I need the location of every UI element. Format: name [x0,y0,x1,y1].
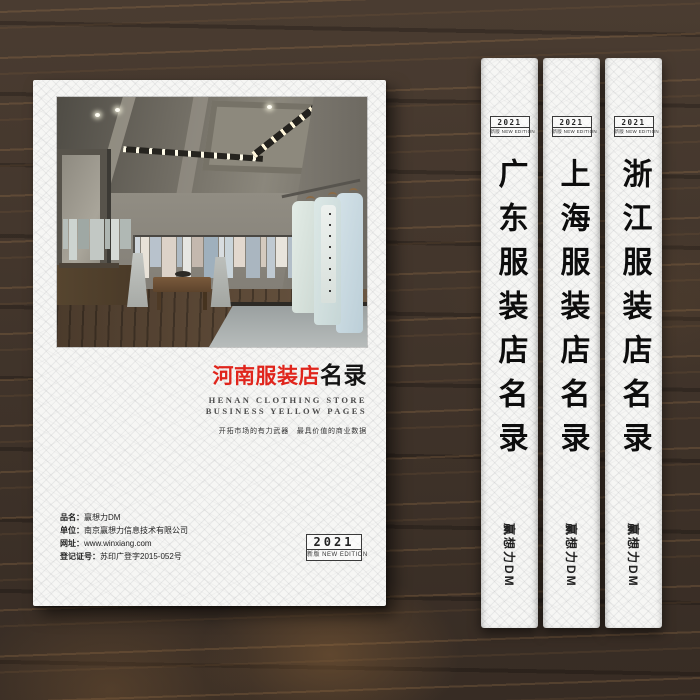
spine-brand: 赢想力DM [563,523,580,588]
photo-wood-floor-left [57,265,135,305]
info-line-company: 单位：南京赢想力信息技术有限公司 [60,524,188,537]
info-value: 苏印广登字2015-052号 [100,552,182,561]
photo-garment [63,219,68,249]
edition-badge: 2021 新版 NEW EDITION [306,534,362,561]
cover-title: 河南服装店名录 [206,364,367,388]
photo-suit-vest [321,205,336,303]
info-label: 网址： [60,539,84,548]
cover-subtitle-line2: BUSINESS YELLOW PAGES [206,406,367,417]
main-book-cover: 河南服装店名录 HENAN CLOTHING STORE BUSINESS YE… [33,80,386,606]
photo-left-garment-rack [63,219,119,265]
photo-garment [267,237,275,278]
cover-title-block: 河南服装店名录 HENAN CLOTHING STORE BUSINESS YE… [206,364,367,436]
book-spine-shanghai: 2021 新版 NEW EDITION 上海服装店名录 赢想力DM [543,58,600,628]
photo-spotlight [115,108,120,112]
info-value: 南京赢想力信息技术有限公司 [84,526,188,535]
info-label: 单位： [60,526,84,535]
cover-photo [57,97,367,347]
photo-garment [120,219,131,249]
publisher-info-block: 品名：赢想力DM 单位：南京赢想力信息技术有限公司 网址：www.winxian… [60,511,188,563]
info-line-registration: 登记证号：苏印广登字2015-052号 [60,550,188,563]
edition-badge-year: 2021 [491,117,529,128]
edition-badge-year: 2021 [307,535,361,550]
photo-garment [150,237,161,267]
photo-table-leg [203,292,207,310]
book-spine-zhejiang: 2021 新版 NEW EDITION 浙江服装店名录 赢想力DM [605,58,662,628]
edition-badge-year: 2021 [553,117,591,128]
book-spine-guangdong: 2021 新版 NEW EDITION 广东服装店名录 赢想力DM [481,58,538,628]
photo-garment [111,219,119,260]
photo-garment [234,237,245,267]
photo-garment [177,237,182,267]
photo-garment [276,237,287,267]
edition-badge-year: 2021 [615,117,653,128]
photo-spotlight [95,113,100,117]
info-line-product: 品名：赢想力DM [60,511,188,524]
photo-spotlight [267,105,272,109]
edition-badge-label: 新版 NEW EDITION [553,128,591,136]
spine-title: 浙江服装店名录 [612,158,656,466]
edition-badge: 2021 新版 NEW EDITION [552,116,592,137]
info-label: 登记证号： [60,552,100,561]
photo-garment [192,237,203,267]
edition-badge-label: 新版 NEW EDITION [307,550,361,560]
photo-garment [105,219,110,249]
spine-title: 广东服装店名录 [488,158,532,466]
edition-badge-label: 新版 NEW EDITION [491,128,529,136]
edition-badge-label: 新版 NEW EDITION [615,128,653,136]
photo-garment [261,237,266,267]
product-shot-background: 河南服装店名录 HENAN CLOTHING STORE BUSINESS YE… [0,0,700,700]
photo-garment [69,219,77,260]
cover-title-region: 河南服装店 [213,364,321,388]
info-line-website: 网址：www.winxiang.com [60,537,188,550]
cover-title-suffix: 名录 [320,363,367,389]
info-label: 品名： [60,513,84,522]
edition-badge: 2021 新版 NEW EDITION [490,116,530,137]
cover-tagline: 开拓市场的有力武器 最具价值的商业数据 [206,426,367,436]
info-value: www.winxiang.com [84,539,152,548]
cover-subtitle-line1: HENAN CLOTHING STORE [206,395,367,406]
photo-garment [162,237,176,278]
edition-badge: 2021 新版 NEW EDITION [614,116,654,137]
photo-wood-table [153,277,211,292]
photo-garment [246,237,260,278]
info-value: 赢想力DM [84,513,120,522]
photo-table-leg [157,292,161,310]
photo-bowl [175,271,191,277]
photo-garment [78,219,89,249]
spine-brand: 赢想力DM [501,523,518,588]
photo-garment [90,219,104,260]
spine-brand: 赢想力DM [625,523,642,588]
spine-title: 上海服装店名录 [550,158,594,466]
